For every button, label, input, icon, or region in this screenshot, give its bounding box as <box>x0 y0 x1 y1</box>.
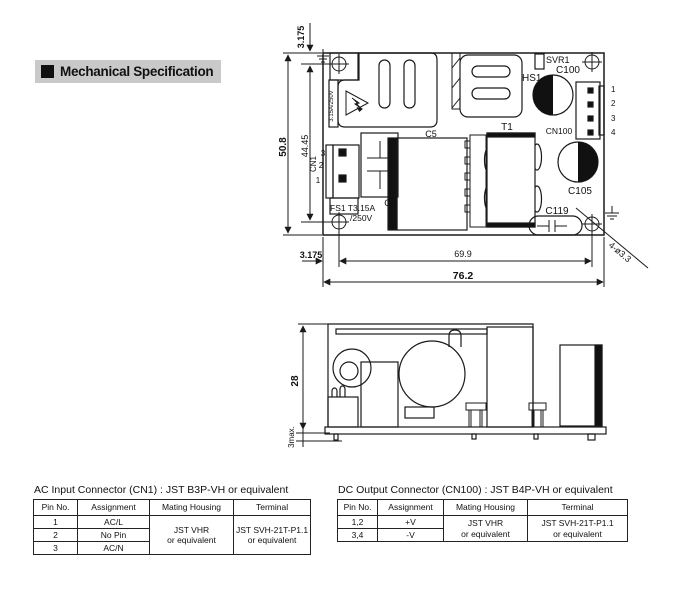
pin <box>334 434 338 440</box>
dim-total-height: 50.8 <box>278 137 289 157</box>
cn100-pin-label: 2 <box>611 99 616 108</box>
fuse-strip-label: 3.15A/250V <box>329 90 335 121</box>
assignment-cell: +V <box>378 516 444 529</box>
terminal-line: JST SVH-21T-P1.1 <box>236 525 308 535</box>
pin <box>534 434 538 439</box>
t1-label: T1 <box>501 122 513 133</box>
hs1-label: HS1 <box>522 73 542 84</box>
terminal-line: or equivalent <box>530 529 625 539</box>
hole-box <box>330 53 358 80</box>
top-view <box>283 23 648 287</box>
assignment-cell: AC/L <box>78 516 150 529</box>
hole-note-leader <box>576 208 648 268</box>
terminal-cell: JST SVH-21T-P1.1 or equivalent <box>234 516 311 555</box>
bracket <box>529 403 546 427</box>
col-pin-no: Pin No. <box>338 500 378 516</box>
side-view-labels: 28 3max. <box>287 375 301 448</box>
cn1-pin <box>339 149 346 156</box>
vent-slot <box>404 60 415 108</box>
mating-housing-line: or equivalent <box>446 529 525 539</box>
fs1-label-2: /250V <box>350 213 373 223</box>
dim-hole-span-height: 44.45 <box>300 135 310 158</box>
component-block <box>361 362 398 427</box>
ground-icon <box>605 206 619 219</box>
col-mating-housing: Mating Housing <box>444 500 528 516</box>
cn1-pin <box>339 175 346 182</box>
vent-slot <box>379 60 390 108</box>
pin-no-cell: 3 <box>34 542 78 555</box>
wire-loop <box>340 386 345 397</box>
bracket <box>466 403 486 427</box>
assignment-cell: No Pin <box>78 529 150 542</box>
mating-housing-line: JST VHR <box>446 518 525 528</box>
pin-no-cell: 1,2 <box>338 516 378 529</box>
cn100-pin <box>588 116 593 121</box>
heatsink-stripe <box>595 345 602 426</box>
dim-pin-length: 3max. <box>287 426 296 448</box>
svr1-body <box>535 54 544 69</box>
cn100-pin-label: 4 <box>611 128 616 137</box>
component-block <box>328 397 358 427</box>
dim-hole-span-width: 69.9 <box>454 249 472 259</box>
col-assignment: Assignment <box>378 500 444 516</box>
svr1-label: SVR1 <box>546 55 570 65</box>
output-choke-block <box>460 55 522 117</box>
dc-output-table: DC Output Connector (CN100) : JST B4P-VH… <box>337 484 628 542</box>
vent-slot <box>472 88 510 99</box>
table-header-row: Pin No. Assignment Mating Housing Termin… <box>338 500 628 516</box>
heatsink-fins <box>465 135 486 227</box>
pin <box>472 434 476 439</box>
col-assignment: Assignment <box>78 500 150 516</box>
wire-loop <box>332 388 337 397</box>
cn100-pin-label: 1 <box>611 85 616 94</box>
c5-capacitor-body <box>397 138 467 230</box>
mating-housing-cell: JST VHR or equivalent <box>444 516 528 542</box>
fs1-label: FS1 T3.15A <box>330 203 376 213</box>
c105-label: C105 <box>568 186 592 197</box>
cn1-connector-face <box>326 145 333 198</box>
terminal-line: or equivalent <box>236 535 308 545</box>
c1-label: C1 <box>384 198 396 208</box>
dim-side-height: 28 <box>290 375 301 387</box>
col-terminal: Terminal <box>528 500 628 516</box>
pcb-bar <box>325 427 606 434</box>
cn100-pin-label: 3 <box>611 114 616 123</box>
c5-label: C5 <box>425 129 437 139</box>
ac-input-table-grid: Pin No. Assignment Mating Housing Termin… <box>33 499 311 555</box>
dim-hole-offset-top: 3.175 <box>296 26 306 49</box>
side-view <box>296 324 606 447</box>
pin-no-cell: 1 <box>34 516 78 529</box>
high-voltage-warning-icon <box>346 91 368 115</box>
top-bar <box>336 329 487 334</box>
c119-label: C119 <box>545 206 569 217</box>
dim-total-width: 76.2 <box>453 270 474 282</box>
input-choke-block <box>338 53 437 127</box>
assignment-cell: -V <box>378 529 444 542</box>
col-mating-housing: Mating Housing <box>150 500 234 516</box>
transformer-side <box>487 327 533 427</box>
vent-slot <box>472 66 510 77</box>
col-terminal: Terminal <box>234 500 311 516</box>
pin-no-cell: 2 <box>34 529 78 542</box>
ac-input-table: AC Input Connector (CN1) : JST B3P-VH or… <box>33 484 311 555</box>
hole-note: 4-ø3.3 <box>607 240 633 264</box>
c119-capacitor <box>529 216 582 235</box>
terminal-cell: JST SVH-21T-P1.1 or equivalent <box>528 516 628 542</box>
cn100-pin <box>588 88 593 93</box>
cn100-pin <box>588 102 593 107</box>
assignment-cell: AC/N <box>78 542 150 555</box>
t1-transformer <box>485 133 542 227</box>
c105-capacitor <box>558 142 598 182</box>
table-row: 1,2 +V JST VHR or equivalent JST SVH-21T… <box>338 516 628 529</box>
pin-no-cell: 3,4 <box>338 529 378 542</box>
hs1-heatsink <box>452 53 460 109</box>
pin <box>588 434 595 440</box>
side-dimension-lines <box>296 324 342 447</box>
table-row: 1 AC/L JST VHR or equivalent JST SVH-21T… <box>34 516 311 529</box>
toroid-side <box>333 349 371 387</box>
cn1-label: CN1 <box>309 155 318 172</box>
cn100-label: CN100 <box>546 126 573 136</box>
page: Mechanical Specification <box>0 0 683 593</box>
c100-label: C100 <box>556 65 580 76</box>
terminal-line: JST SVH-21T-P1.1 <box>530 518 625 528</box>
mating-housing-line: or equivalent <box>152 535 231 545</box>
mating-housing-line: JST VHR <box>152 525 231 535</box>
col-pin-no: Pin No. <box>34 500 78 516</box>
c5-stripe <box>388 138 397 230</box>
cn1-pin-label: 1 <box>316 176 321 185</box>
side-outline <box>328 324 533 427</box>
cn1-pin-label: 2 <box>319 161 324 170</box>
table-header-row: Pin No. Assignment Mating Housing Termin… <box>34 500 311 516</box>
cn1-pin-label: 3 <box>321 149 326 158</box>
capacitor-side <box>399 341 465 407</box>
mating-housing-cell: JST VHR or equivalent <box>150 516 234 555</box>
dim-hole-offset-bottom: 3.175 <box>300 250 323 260</box>
dc-output-table-grid: Pin No. Assignment Mating Housing Termin… <box>337 499 628 542</box>
wire-hook <box>449 330 461 347</box>
ac-input-table-title: AC Input Connector (CN1) : JST B3P-VH or… <box>34 484 311 496</box>
component-block <box>405 407 434 418</box>
dc-output-table-title: DC Output Connector (CN100) : JST B4P-VH… <box>338 484 628 496</box>
mounting-hole-top-right <box>582 52 602 72</box>
cn100-pin <box>588 130 593 135</box>
